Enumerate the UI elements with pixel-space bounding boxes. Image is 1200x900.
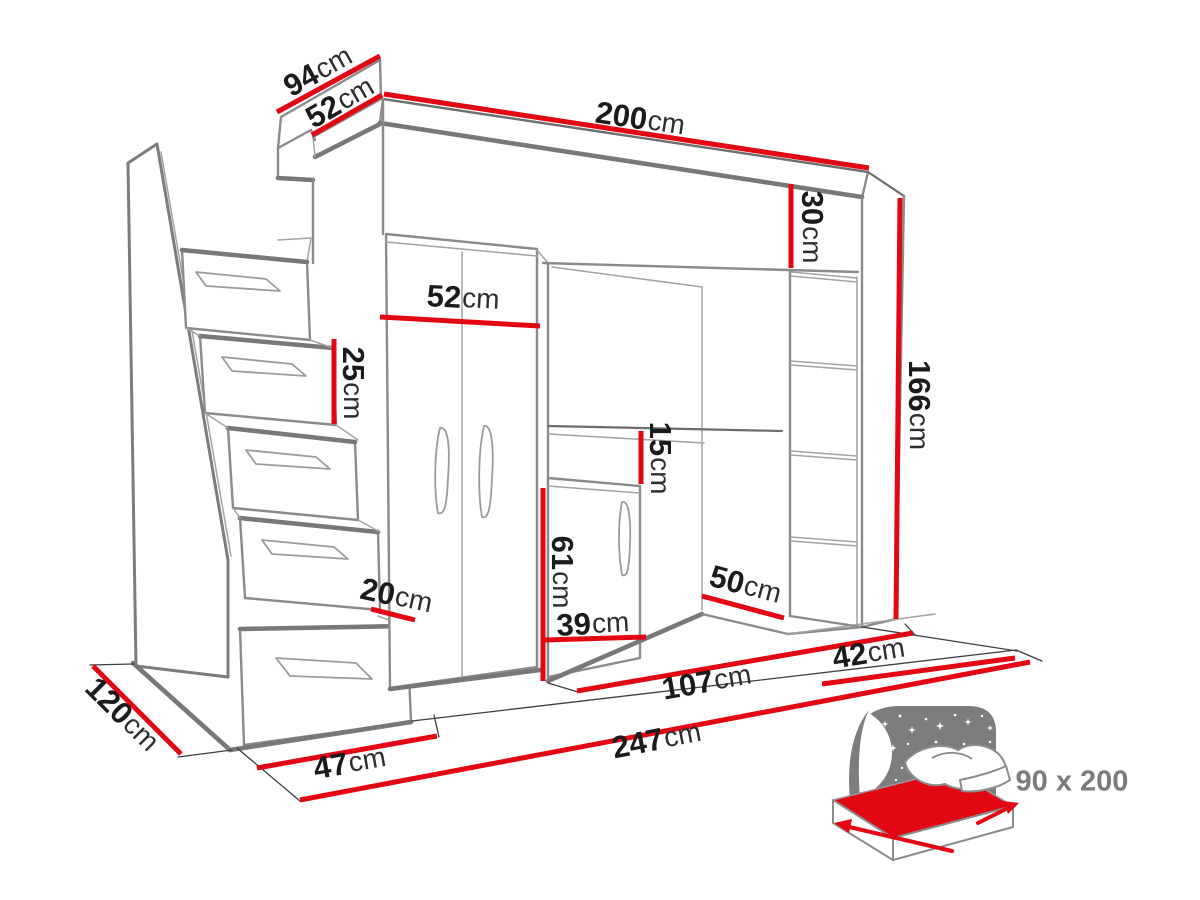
dim-label-15: 15cm [643, 422, 678, 495]
dim-label-52-wardrobe: 52cm [426, 278, 501, 317]
loft-bed-drawing: 94cm 52cm 200cm 30cm 166cm 52cm 25cm 15c… [0, 0, 1200, 900]
dim-label-166: 166cm [902, 360, 937, 450]
moon-cutout [800, 707, 892, 799]
dim-label-47: 47cm [311, 739, 389, 786]
dim-label-42: 42cm [830, 630, 907, 676]
dim-label-25: 25cm [336, 347, 371, 420]
dim-label-61: 61cm [545, 536, 580, 609]
cabinet-handle [619, 502, 630, 576]
wardrobe-handle-right [479, 426, 493, 517]
bed-size-label: 90 x 200 [1016, 766, 1129, 798]
dim-label-39: 39cm [556, 604, 631, 643]
dim-label-30: 30cm [795, 191, 830, 264]
stairs-unit [128, 144, 414, 750]
wardrobe-handle-left [435, 428, 449, 514]
furniture-dimension-diagram: 94cm 52cm 200cm 30cm 166cm 52cm 25cm 15c… [0, 0, 1200, 900]
dim-label-50: 50cm [706, 558, 785, 611]
bed-icon [800, 706, 1019, 860]
dim-line-166 [896, 198, 900, 619]
shelf-unit [790, 270, 862, 627]
dim-label-107: 107cm [659, 657, 754, 707]
dim-label-247: 247cm [609, 714, 704, 766]
